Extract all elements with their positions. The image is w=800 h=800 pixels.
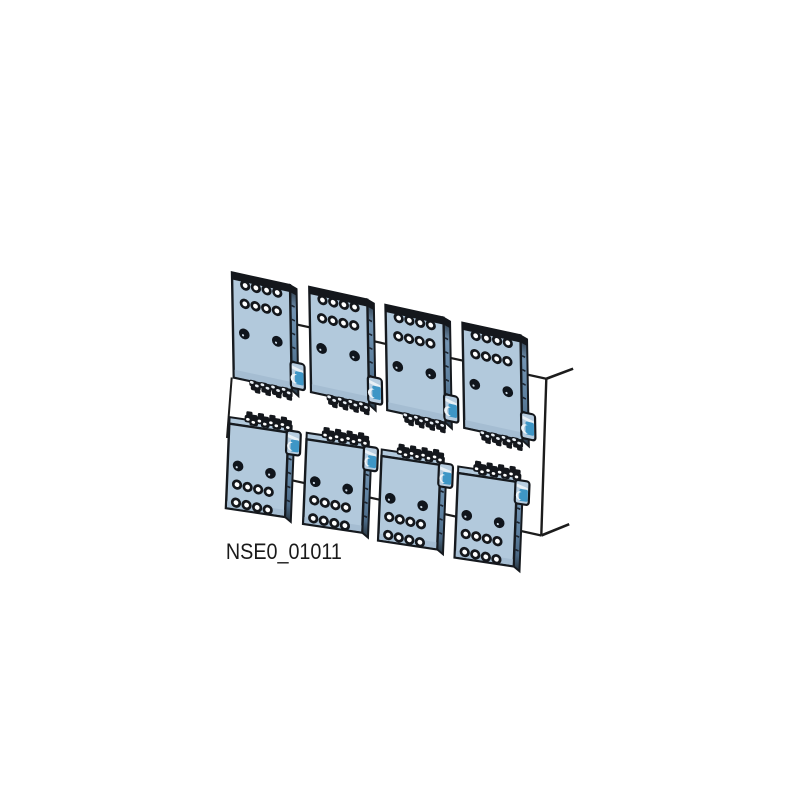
svg-text:NSE0_01011: NSE0_01011 xyxy=(226,539,342,564)
